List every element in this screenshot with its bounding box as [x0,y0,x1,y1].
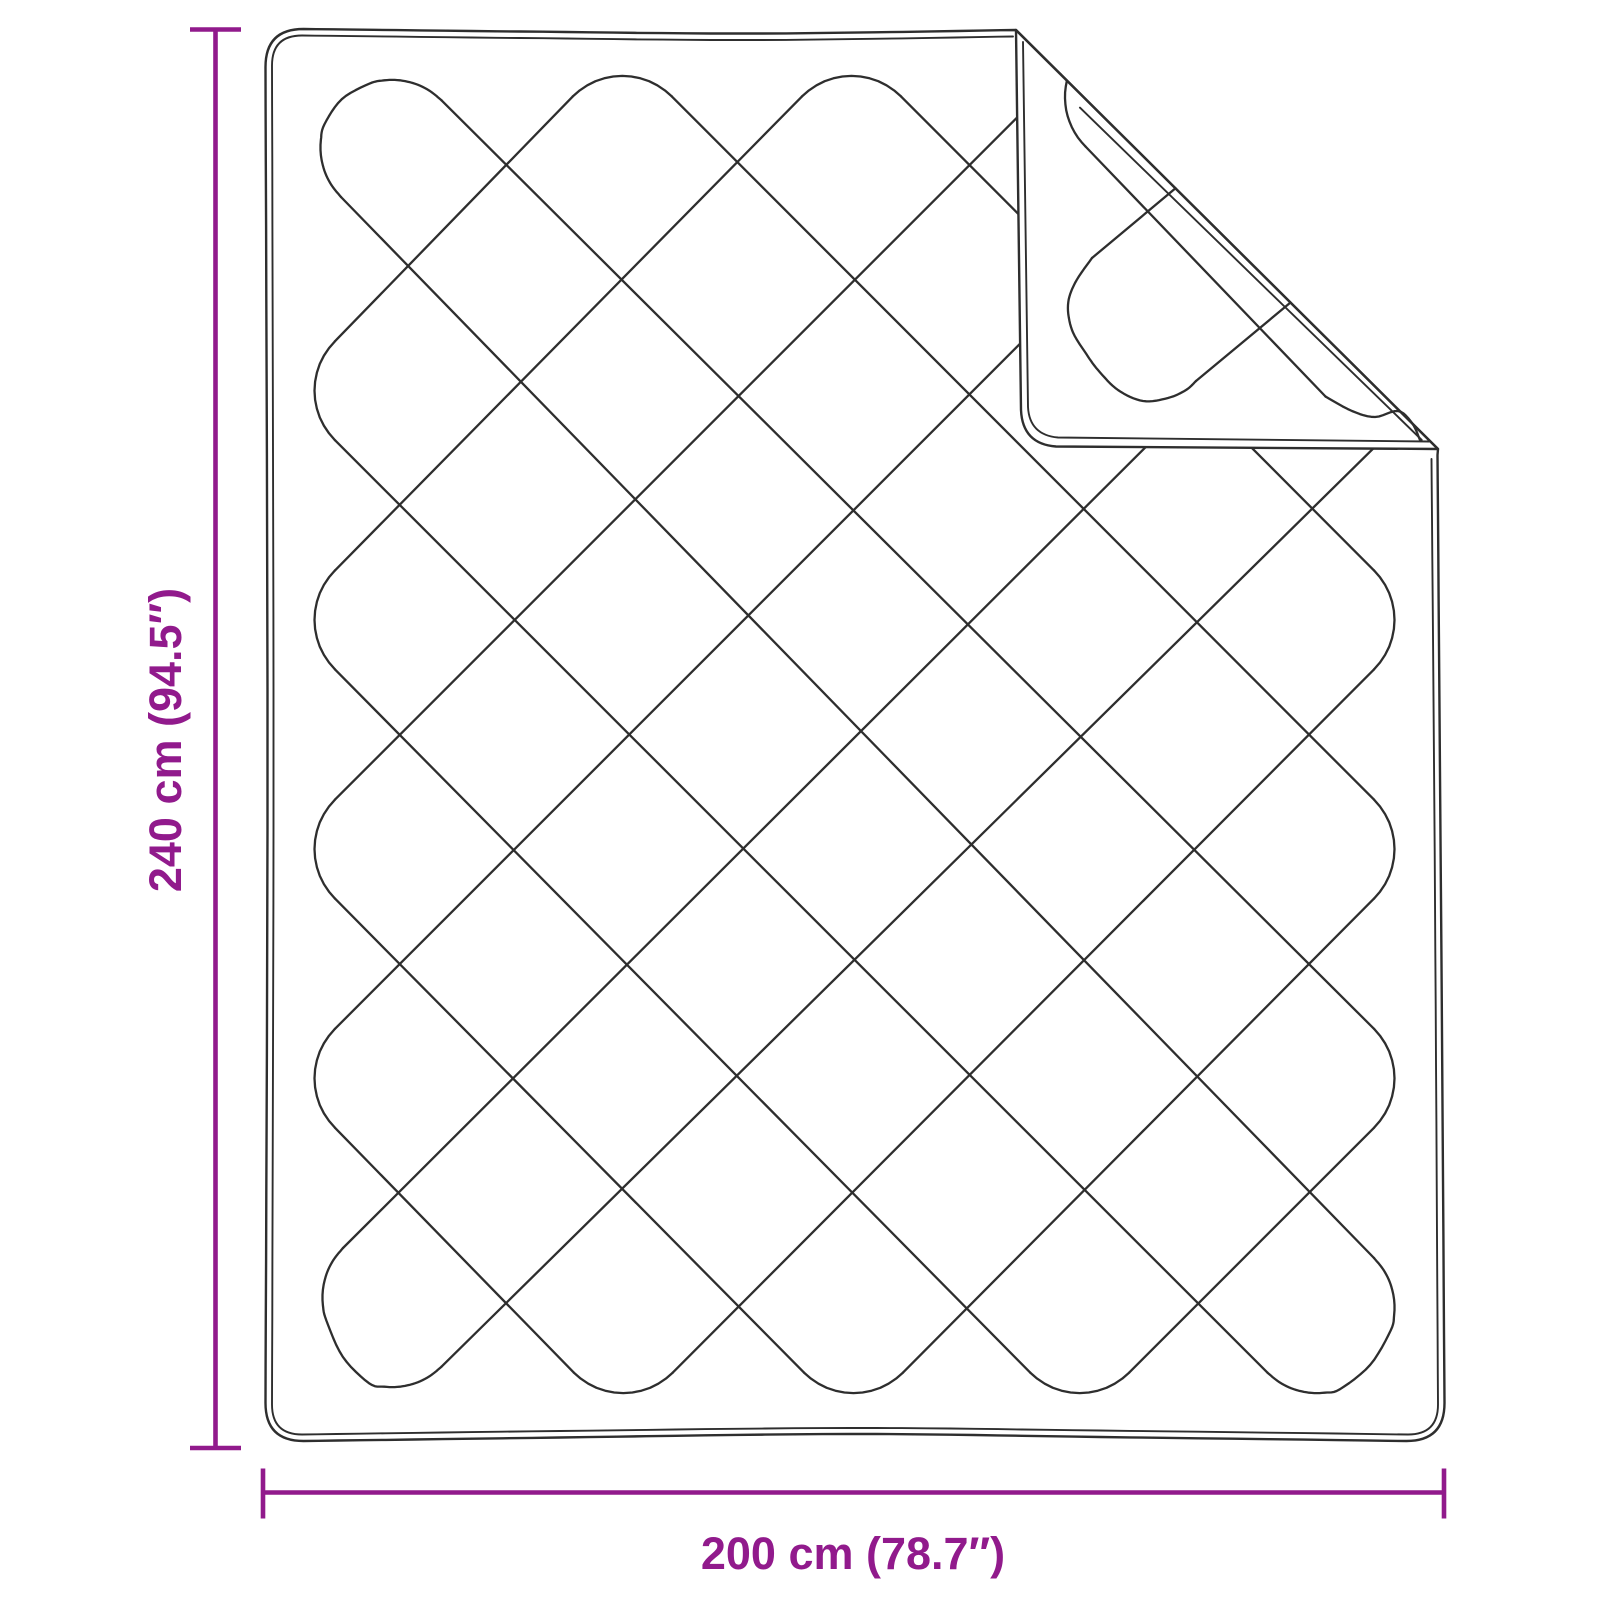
svg-text:240 cm (94.5″): 240 cm (94.5″) [140,588,191,892]
svg-text:200 cm (78.7″): 200 cm (78.7″) [701,1528,1005,1579]
